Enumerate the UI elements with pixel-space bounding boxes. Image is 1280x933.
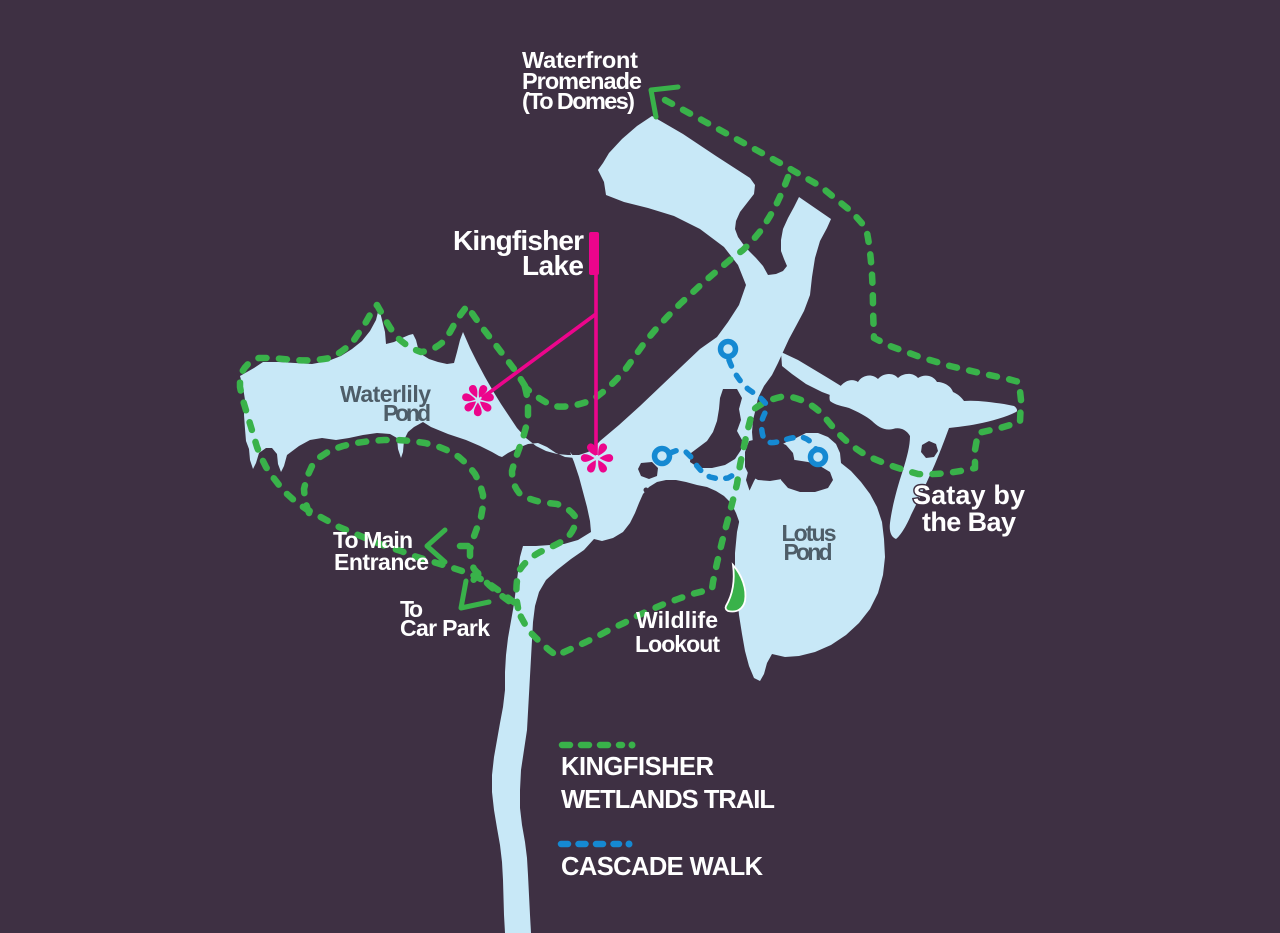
- svg-text:CASCADE WALK: CASCADE WALK: [561, 853, 764, 881]
- svg-text:Wildlife: Wildlife: [636, 607, 718, 633]
- svg-text:KINGFISHER: KINGFISHER: [561, 753, 714, 781]
- svg-text:Satay by: Satay by: [913, 480, 1025, 510]
- svg-text:Lake: Lake: [522, 250, 584, 281]
- svg-text:WETLANDS TRAIL: WETLANDS TRAIL: [561, 786, 775, 814]
- svg-text:(To Domes): (To Domes): [522, 88, 635, 114]
- svg-text:Car Park: Car Park: [400, 615, 490, 641]
- svg-text:Lookout: Lookout: [635, 631, 720, 657]
- svg-text:Pond: Pond: [784, 539, 833, 565]
- svg-text:Pond: Pond: [383, 400, 431, 426]
- svg-text:the Bay: the Bay: [922, 507, 1016, 537]
- svg-text:Entrance: Entrance: [334, 549, 429, 575]
